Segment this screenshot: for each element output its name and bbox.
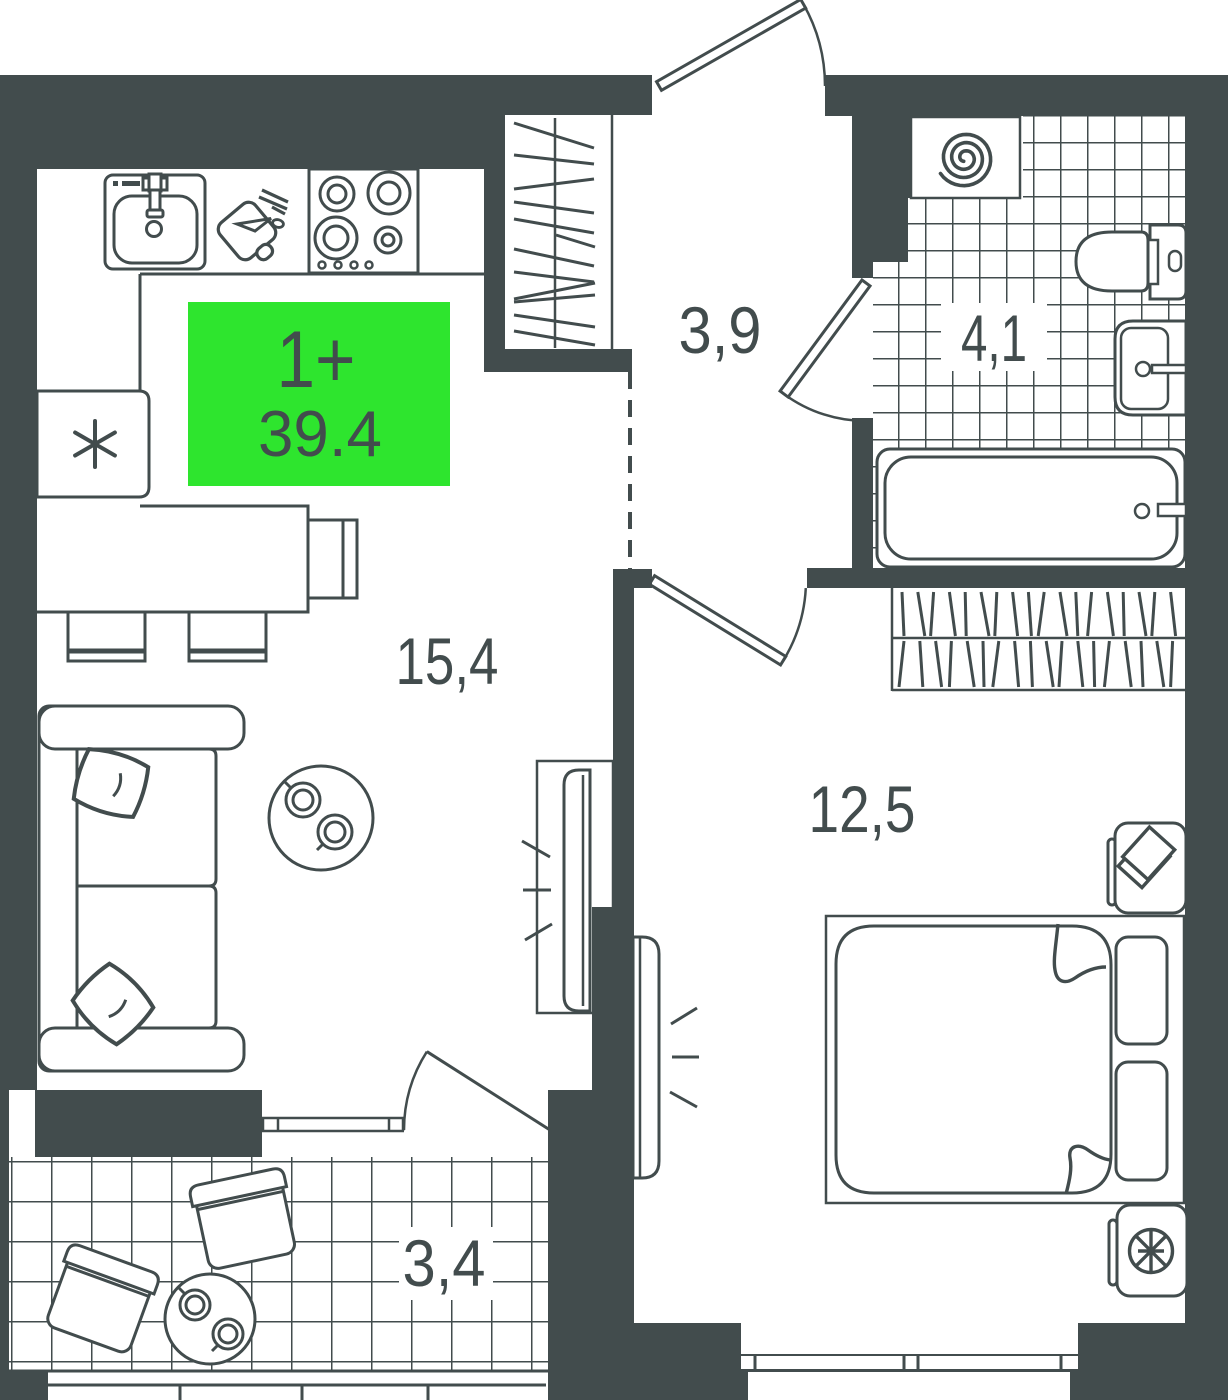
svg-text:3,4: 3,4 — [403, 1226, 486, 1300]
svg-text:15,4: 15,4 — [396, 624, 499, 698]
svg-text:12,5: 12,5 — [809, 772, 916, 846]
svg-text:4,1: 4,1 — [961, 301, 1027, 375]
svg-text:3,9: 3,9 — [679, 293, 762, 367]
svg-text:1+: 1+ — [277, 315, 356, 405]
svg-text:39.4: 39.4 — [258, 397, 382, 470]
